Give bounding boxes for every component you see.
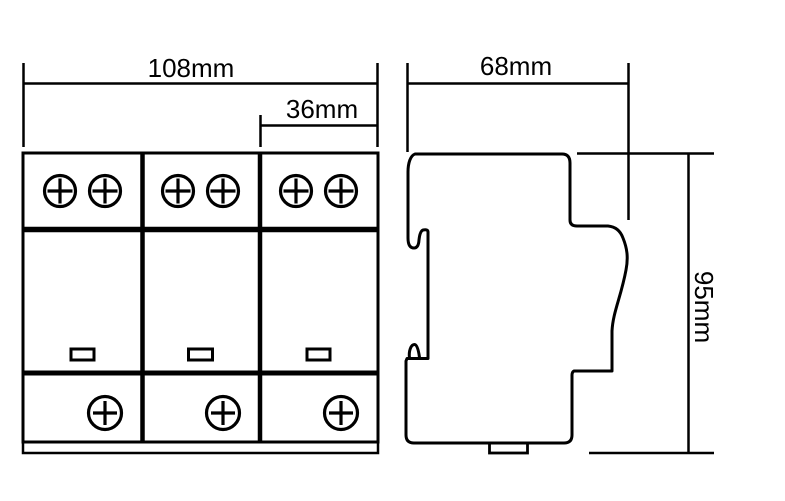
- dimension-label-height: 95mm: [691, 247, 717, 367]
- technical-drawing: 108mm 36mm 68mm 95mm: [0, 0, 785, 501]
- din-rail-claw: [409, 345, 419, 359]
- drawing-canvas: [0, 0, 785, 501]
- side-profile-outline: [406, 154, 627, 443]
- indicator-window: [189, 349, 213, 360]
- dimension-label-depth: 68mm: [456, 53, 576, 79]
- side-view-dimensions: [408, 63, 715, 453]
- screw-terminal-icon: [207, 397, 240, 430]
- screw-terminal-icon: [163, 176, 194, 207]
- front-view-body: [23, 153, 378, 442]
- screw-terminal-icon: [325, 397, 358, 430]
- screw-terminal-icon: [45, 176, 76, 207]
- dimension-label-module-width: 36mm: [262, 96, 382, 122]
- dimension-label-overall-width: 108mm: [131, 55, 251, 81]
- screw-terminal-icon: [90, 176, 121, 207]
- indicator-window: [307, 349, 330, 360]
- front-view: [23, 153, 378, 453]
- side-view: [406, 154, 627, 453]
- screw-terminal-icon: [281, 176, 312, 207]
- indicator-window: [71, 349, 94, 360]
- screw-terminal-icon: [326, 176, 357, 207]
- front-view-base-strip: [23, 442, 378, 453]
- screw-terminal-icon: [208, 176, 239, 207]
- screw-terminal-icon: [89, 397, 122, 430]
